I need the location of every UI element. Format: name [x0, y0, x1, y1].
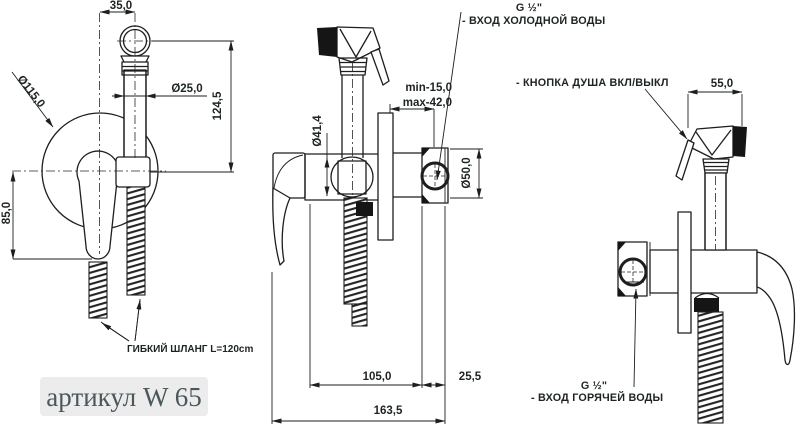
- dim-25: Ø25,0: [171, 83, 202, 95]
- shower-trigger-right: [676, 140, 694, 180]
- dim-105: 105,0: [363, 371, 392, 383]
- dim-55: 55,0: [711, 78, 733, 90]
- dim-55-ext: [688, 94, 742, 128]
- shower-trigger-side: [371, 49, 389, 85]
- mixer-body-right: [650, 250, 757, 293]
- supply-hose-front: [89, 262, 107, 318]
- spray-face: [317, 27, 337, 57]
- control-lever-side: [273, 188, 290, 265]
- dim-414: Ø41,4: [312, 115, 324, 147]
- dim-50: Ø50,0: [461, 157, 473, 188]
- hot-leader: [634, 289, 636, 387]
- dim-1635: 163,5: [374, 405, 403, 417]
- button-leader: [645, 89, 687, 139]
- inlet-valve-right: [618, 242, 647, 296]
- dim-35: 35,0: [110, 0, 132, 12]
- dim-115: Ø115,0: [15, 73, 47, 110]
- side-right-view: - КНОПКА ДУША ВКЛ/ВЫКЛ 55,0 G ½" - ВХОД …: [516, 77, 794, 423]
- side-view: G ½" - ВХОД ХОЛОДНОЙ ВОДЫ Ø41,4 min-15,0…: [272, 2, 605, 424]
- dim-85: 85,0: [1, 202, 13, 224]
- holder-ring: [331, 157, 373, 197]
- hose-nut-right: [694, 298, 719, 312]
- hose-leader-arrow-2: [135, 300, 140, 341]
- inlet-valve-side: [422, 148, 448, 203]
- dim-255: 25,5: [459, 371, 482, 383]
- hose-dome-right: [695, 294, 719, 299]
- hose-leader-arrow-1: [102, 323, 129, 341]
- dim-1245: 124,5: [212, 91, 224, 120]
- shower-hose-right: [698, 312, 723, 423]
- wall-plate-right: [678, 212, 691, 333]
- technical-drawing: 35,0 Ø115,0 Ø25,0 124,5 85,0 ГИБКИЙ ШЛАН…: [0, 0, 796, 426]
- shower-head-right: [688, 126, 733, 159]
- shower-holder-socket: [116, 157, 150, 187]
- dim-depth-min: min-15,0: [405, 82, 452, 94]
- spray-face-right: [733, 126, 747, 157]
- head-neck-rings-right: [703, 159, 729, 173]
- wall-pipe: [393, 153, 422, 197]
- drawing-sheet: 35,0 Ø115,0 Ø25,0 124,5 85,0 ГИБКИЙ ШЛАН…: [0, 0, 796, 426]
- article-label: артикул W 65: [46, 382, 201, 412]
- hose-label: ГИБКИЙ ШЛАНГ L=120cm: [127, 342, 253, 355]
- cold-thread-label: G ½": [516, 2, 542, 14]
- hose-nut-side: [356, 202, 373, 216]
- cold-leader: [437, 12, 461, 180]
- mixer-handle-front: [77, 151, 119, 259]
- control-lever-right: [757, 252, 794, 365]
- wall-plate-side: [378, 113, 393, 240]
- hot-thread-label: G ½": [581, 380, 607, 392]
- hose-tail-side: [352, 304, 367, 326]
- dim-depth-ext: [390, 104, 434, 147]
- dim-depth-max: max-42,0: [403, 97, 452, 109]
- hot-inlet-label: - ВХОД ГОРЯЧЕЙ ВОДЫ: [531, 391, 663, 404]
- holder-ring-hub: [338, 161, 366, 194]
- cold-inlet-label: - ВХОД ХОЛОДНОЙ ВОДЫ: [462, 14, 605, 27]
- button-label: - КНОПКА ДУША ВКЛ/ВЫКЛ: [516, 77, 669, 89]
- front-view: 35,0 Ø115,0 Ø25,0 124,5 85,0 ГИБКИЙ ШЛАН…: [1, 0, 253, 416]
- shower-hose-front: [127, 187, 145, 295]
